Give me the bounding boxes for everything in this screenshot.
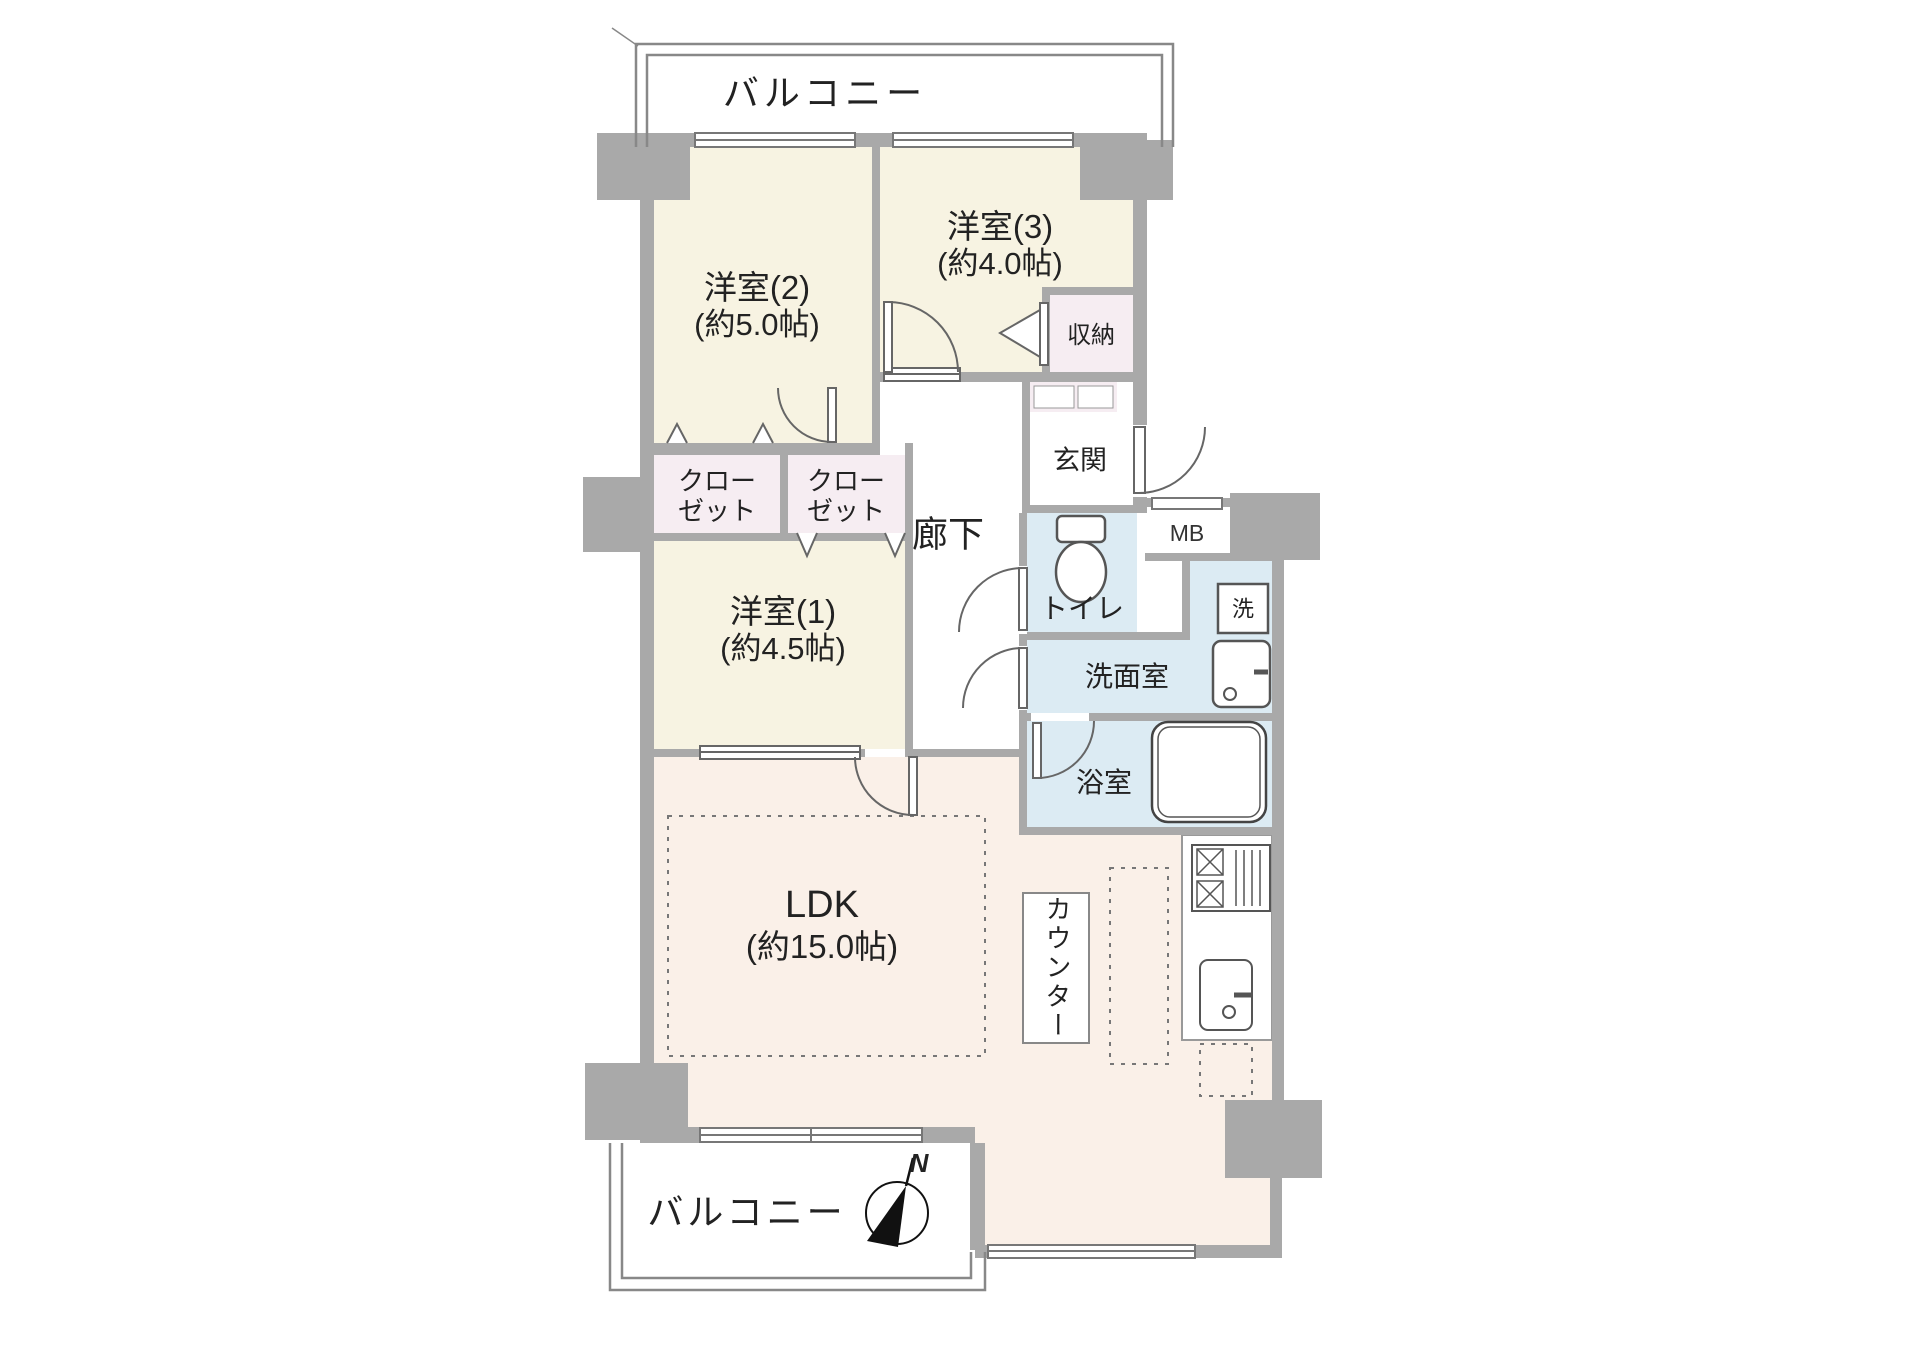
counter-label: カウンター <box>1041 896 1071 1041</box>
room3-label: 洋室(3) (約4.0帖) <box>937 208 1063 282</box>
balcony-top-label: バルコニー <box>723 72 927 113</box>
room2-label: 洋室(2) (約5.0帖) <box>694 269 820 343</box>
closet1-line1: クロー <box>678 467 756 497</box>
room1-label: 洋室(1) (約4.5帖) <box>720 593 846 667</box>
closet1-label: クロー ゼット <box>678 467 756 527</box>
balcony-bottom-label: バルコニー <box>647 1191 846 1232</box>
room3-name: 洋室(3) <box>937 208 1063 246</box>
washer-label: 洗 <box>1232 596 1254 621</box>
compass-north-label: N <box>910 1149 929 1179</box>
ldk-label: LDK (約15.0帖) <box>746 884 898 966</box>
ldk-name: LDK <box>746 884 898 928</box>
toilet-label: トイレ <box>1040 593 1124 625</box>
labels-layer: バルコニー 洋室(2) (約5.0帖) 洋室(3) (約4.0帖) 収納 クロー… <box>0 0 1920 1356</box>
closet2-line1: クロー <box>807 467 885 497</box>
room2-name: 洋室(2) <box>694 269 820 307</box>
closet1-line2: ゼット <box>678 497 756 527</box>
hallway-label: 廊下 <box>912 513 984 554</box>
room1-size: (約4.5帖) <box>720 631 846 667</box>
genkan-label: 玄関 <box>1053 445 1107 476</box>
closet2-label: クロー ゼット <box>807 467 885 527</box>
room3-size: (約4.0帖) <box>937 246 1063 282</box>
floor-plan-page: バルコニー 洋室(2) (約5.0帖) 洋室(3) (約4.0帖) 収納 クロー… <box>0 0 1920 1356</box>
storage-label: 収納 <box>1067 322 1115 350</box>
washroom-label: 洗面室 <box>1085 661 1169 693</box>
closet2-line2: ゼット <box>807 497 885 527</box>
ldk-size: (約15.0帖) <box>746 928 898 966</box>
bathroom-label: 浴室 <box>1076 767 1132 799</box>
room1-name: 洋室(1) <box>720 593 846 631</box>
meter-box-label: MB <box>1170 520 1205 546</box>
room2-size: (約5.0帖) <box>694 307 820 343</box>
